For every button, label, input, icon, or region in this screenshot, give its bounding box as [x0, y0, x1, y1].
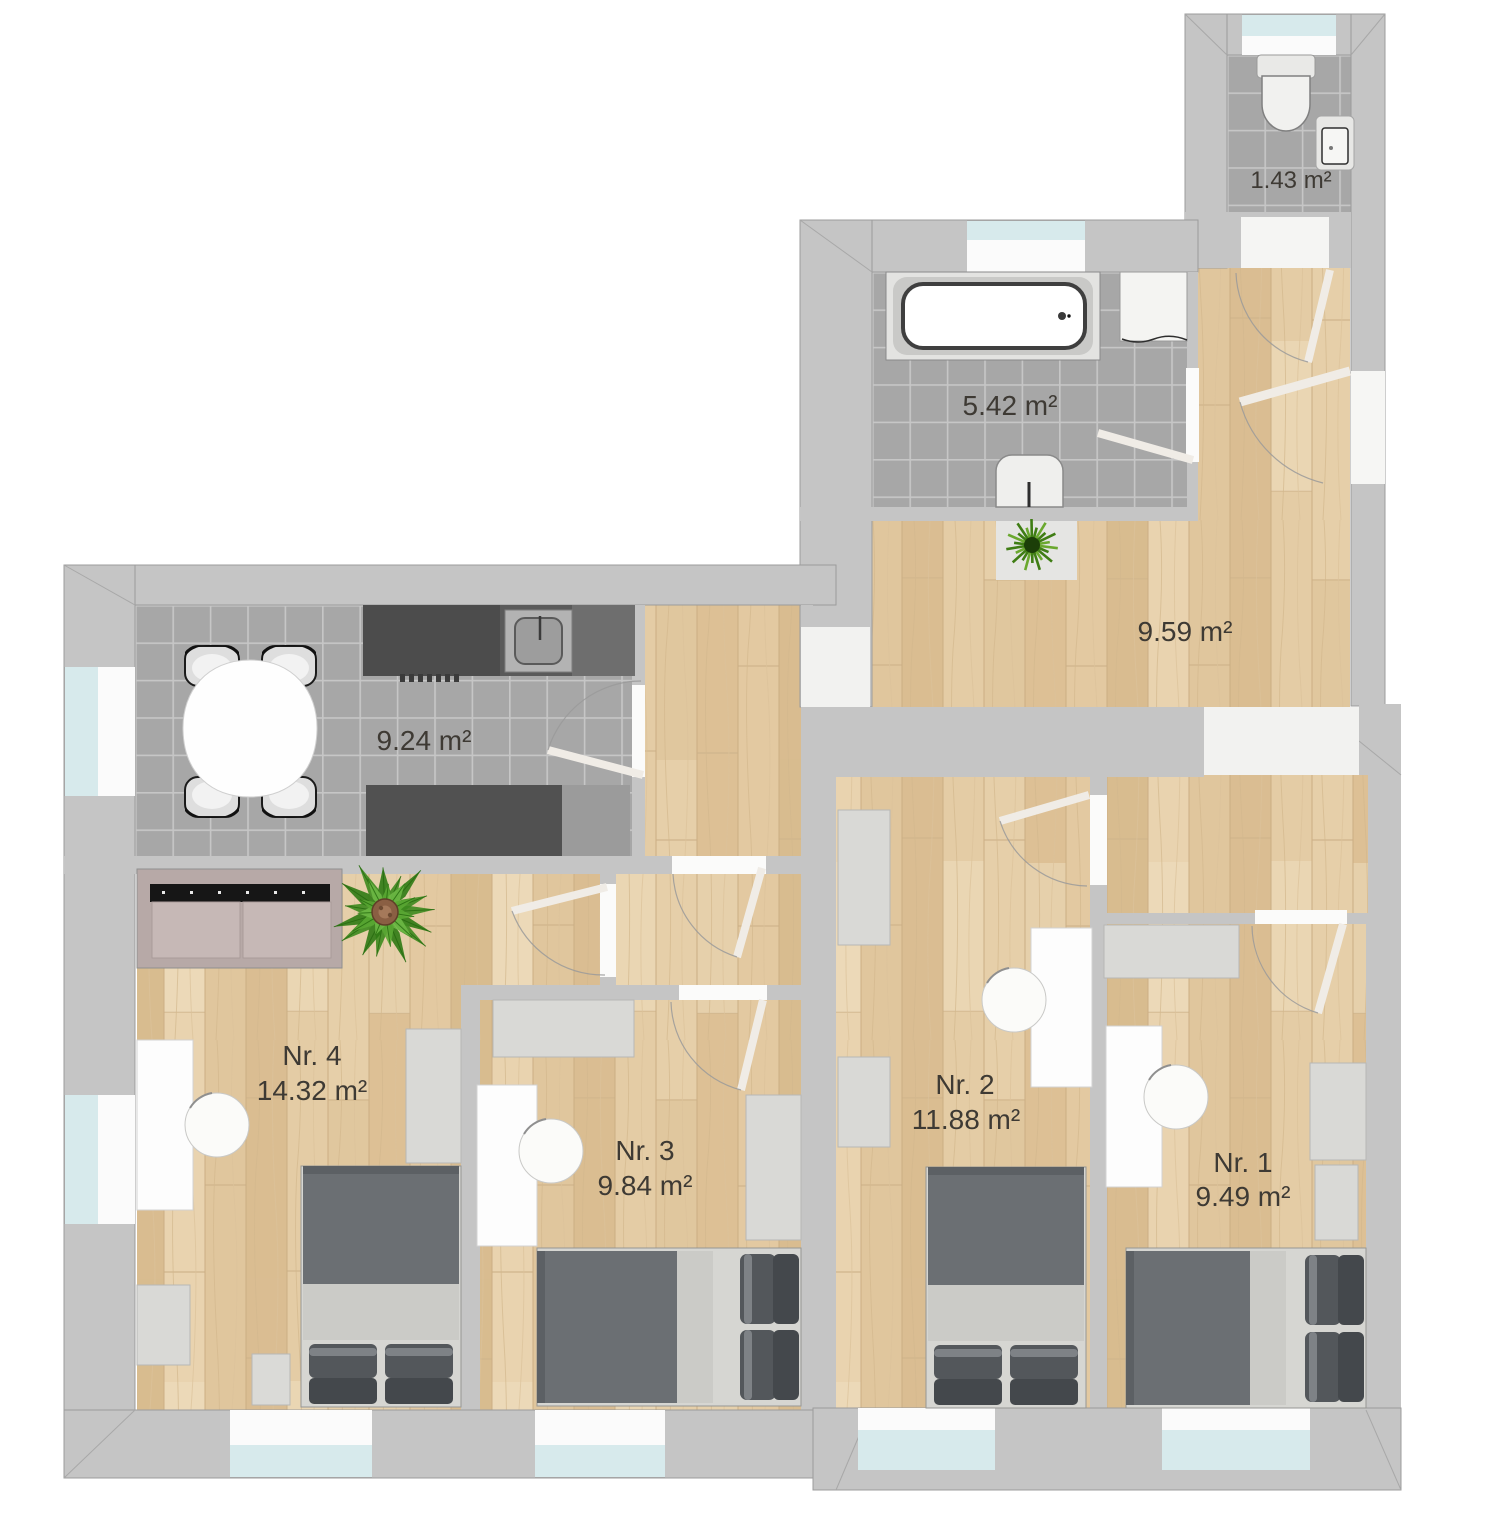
- svg-text:Nr. 4: Nr. 4: [282, 1040, 341, 1071]
- svg-text:11.88 m²: 11.88 m²: [912, 1104, 1020, 1135]
- svg-text:Nr. 2: Nr. 2: [935, 1069, 994, 1100]
- svg-text:9.24 m²: 9.24 m²: [377, 725, 472, 756]
- svg-text:Nr. 3: Nr. 3: [615, 1135, 674, 1166]
- svg-text:5.42 m²: 5.42 m²: [963, 390, 1058, 421]
- svg-text:14.32 m²: 14.32 m²: [257, 1075, 368, 1106]
- svg-text:9.84 m²: 9.84 m²: [598, 1170, 693, 1201]
- svg-text:Nr. 1: Nr. 1: [1213, 1147, 1272, 1178]
- svg-text:1.43 m²: 1.43 m²: [1250, 167, 1331, 194]
- svg-text:9.59 m²: 9.59 m²: [1138, 616, 1233, 647]
- svg-text:9.49 m²: 9.49 m²: [1196, 1181, 1291, 1212]
